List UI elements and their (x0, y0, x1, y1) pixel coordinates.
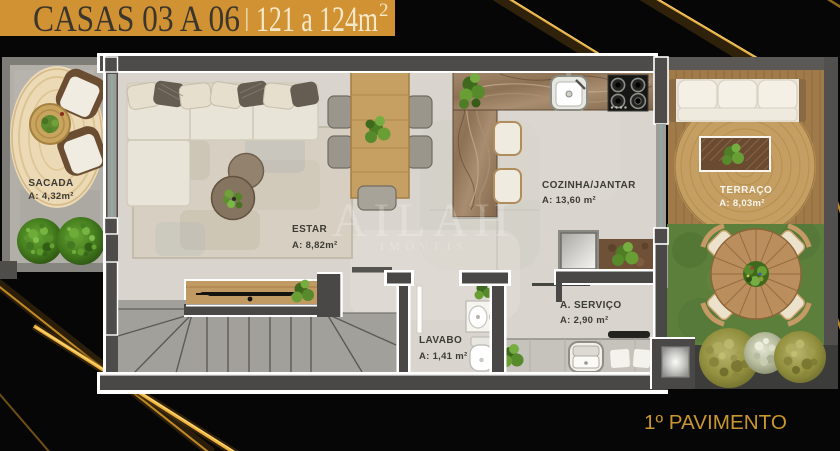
svg-text:TERRAÇO: TERRAÇO (720, 185, 772, 196)
svg-text:IMÓVEIS: IMÓVEIS (380, 239, 469, 253)
svg-text:A: 1,41 m²: A: 1,41 m² (419, 351, 467, 362)
svg-text:A: 13,60 m²: A: 13,60 m² (542, 195, 596, 206)
svg-text:A. SERVIÇO: A. SERVIÇO (560, 300, 622, 311)
svg-text:ESTAR: ESTAR (292, 224, 328, 235)
svg-text:A: 2,90 m²: A: 2,90 m² (560, 315, 608, 326)
svg-text:A: 8,03m²: A: 8,03m² (719, 198, 764, 209)
svg-text:1º PAVIMENTO: 1º PAVIMENTO (644, 412, 787, 434)
svg-text:COZINHA/JANTAR: COZINHA/JANTAR (542, 180, 636, 191)
svg-text:LAVABO: LAVABO (419, 335, 462, 346)
svg-text:A: 4,32m²: A: 4,32m² (28, 191, 73, 202)
svg-text:SACADA: SACADA (28, 178, 73, 189)
svg-text:CASAS 03 A 06: CASAS 03 A 06 (33, 0, 240, 40)
svg-text:A: 8,82m²: A: 8,82m² (292, 240, 337, 251)
svg-text:2: 2 (379, 0, 389, 21)
svg-text:121 a 124m: 121 a 124m (256, 0, 378, 39)
